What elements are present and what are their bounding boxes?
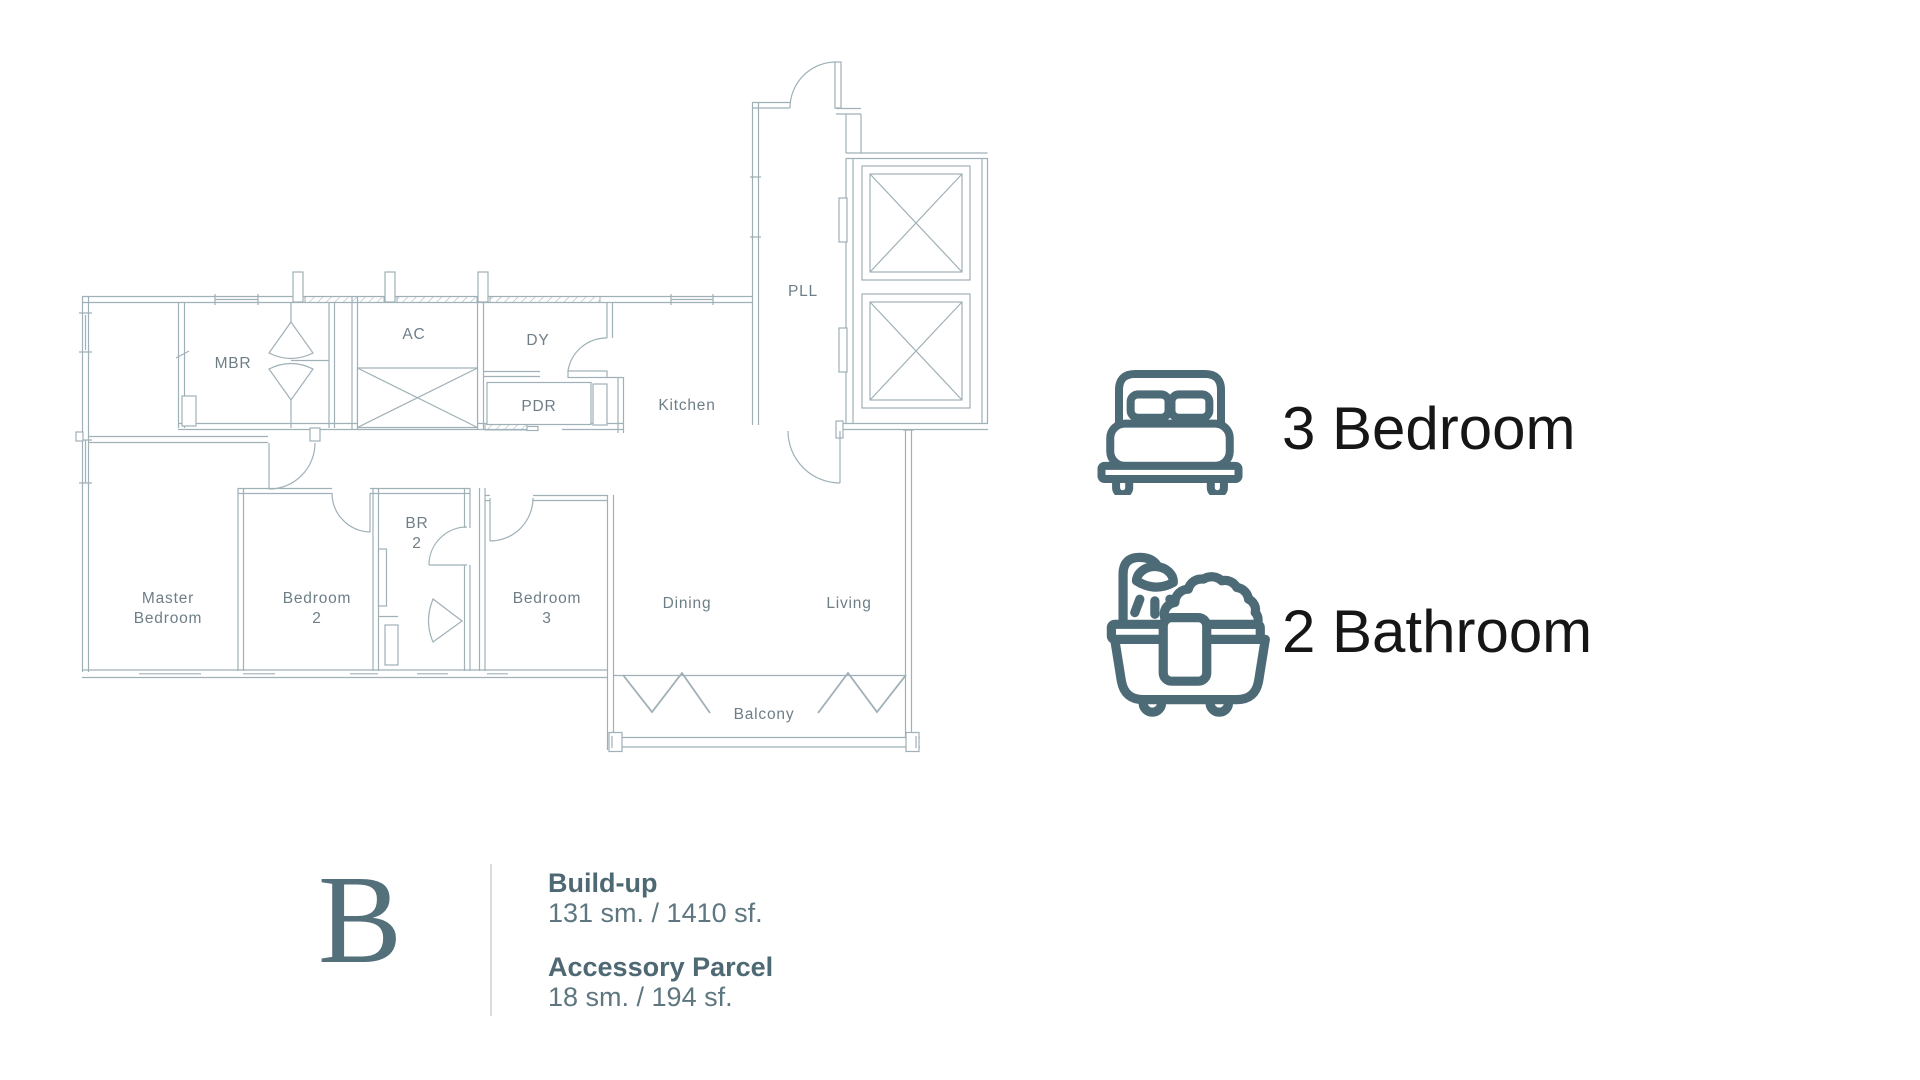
room-label-br2-2: 2 <box>412 535 421 552</box>
elevator-shafts <box>839 166 970 408</box>
buildup-value: 131 sm. / 1410 sf. <box>548 898 773 928</box>
buildup-block: Build-up 131 sm. / 1410 sf. <box>548 868 773 928</box>
room-label-mbr: MBR <box>215 355 252 372</box>
room-label-bedroom2-2: 2 <box>312 610 321 627</box>
room-label-dy: DY <box>526 332 549 349</box>
room-label-pdr: PDR <box>521 398 556 415</box>
room-label-kitchen: Kitchen <box>658 397 715 414</box>
room-labels: MBR AC DY PDR Kitchen PLL Master Bedroom… <box>134 283 872 723</box>
room-label-dining: Dining <box>663 595 712 612</box>
floor-plan: MBR AC DY PDR Kitchen PLL Master Bedroom… <box>0 0 1020 790</box>
floorplan-page: MBR AC DY PDR Kitchen PLL Master Bedroom… <box>0 0 1920 1080</box>
bed-icon <box>1097 358 1243 495</box>
buildup-heading: Build-up <box>548 868 773 898</box>
room-label-bedroom2: Bedroom <box>283 590 352 607</box>
accessory-parcel-heading: Accessory Parcel <box>548 952 773 982</box>
ac-ledge-box <box>358 368 478 428</box>
unit-details: Build-up 131 sm. / 1410 sf. Accessory Pa… <box>548 868 773 1036</box>
room-label-master-bedroom-2: Bedroom <box>134 610 203 627</box>
bedroom-count-label: 3 Bedroom <box>1282 394 1576 463</box>
unit-type-letter: B <box>318 858 402 984</box>
door-swings <box>269 62 841 565</box>
bathroom2-fixtures <box>379 549 463 665</box>
bathroom-count-label: 2 Bathroom <box>1282 597 1592 666</box>
room-label-master-bedroom: Master <box>142 590 194 607</box>
room-label-balcony: Balcony <box>734 706 795 723</box>
accessory-parcel-block: Accessory Parcel 18 sm. / 194 sf. <box>548 952 773 1012</box>
room-label-bedroom3-2: 3 <box>542 610 551 627</box>
room-label-br2: BR <box>405 515 428 532</box>
room-label-pll: PLL <box>788 283 818 300</box>
room-label-living: Living <box>826 595 871 612</box>
room-label-bedroom3: Bedroom <box>513 590 582 607</box>
accessory-parcel-value: 18 sm. / 194 sf. <box>548 982 773 1012</box>
vertical-divider <box>490 864 492 1016</box>
bathtub-icon <box>1103 543 1277 719</box>
room-label-ac: AC <box>402 326 425 343</box>
